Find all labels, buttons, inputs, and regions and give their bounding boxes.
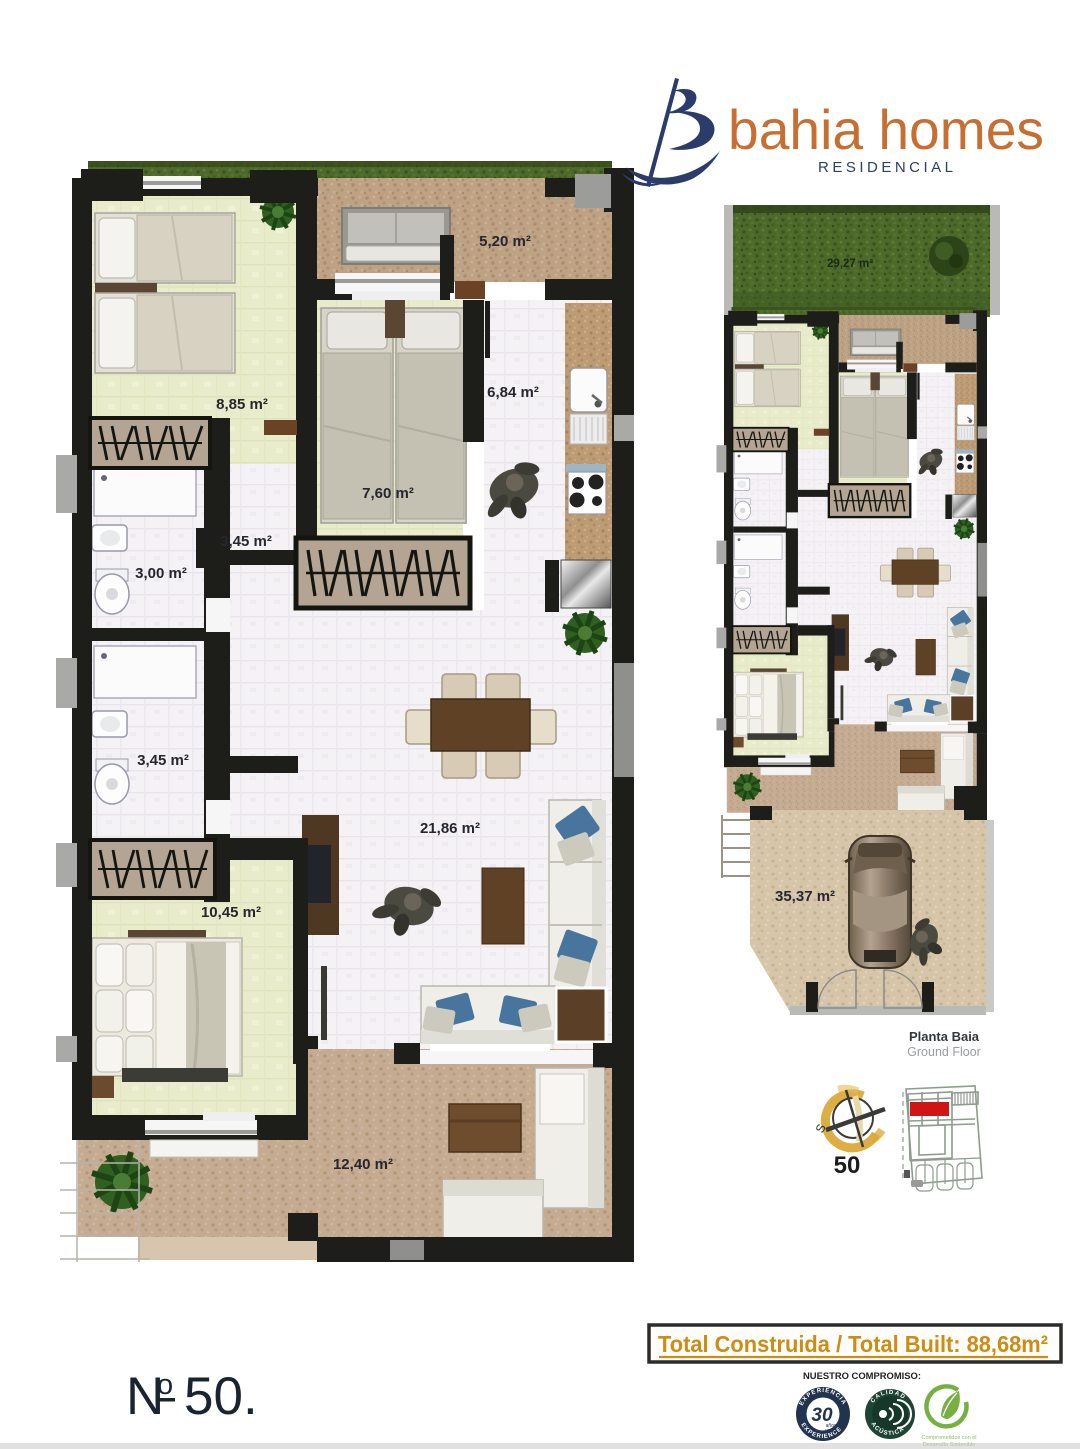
svg-text:Comprometidos con el: Comprometidos con el (921, 1435, 976, 1441)
svg-text:3,45 m²: 3,45 m² (220, 533, 272, 550)
svg-text:Planta Baia: Planta Baia (909, 1029, 980, 1044)
svg-text:6,84 m²: 6,84 m² (487, 384, 539, 401)
svg-text:50: 50 (834, 1152, 861, 1179)
svg-text:3,00 m²: 3,00 m² (135, 565, 187, 582)
svg-text:RESIDENCIAL: RESIDENCIAL (818, 159, 958, 176)
svg-text:12,40 m²: 12,40 m² (333, 1156, 393, 1173)
svg-text:29,27 m²: 29,27 m² (827, 258, 873, 270)
svg-text:50.: 50. (184, 1367, 258, 1426)
svg-text:years: years (825, 1428, 838, 1434)
svg-text:7,60 m²: 7,60 m² (362, 485, 414, 502)
svg-text:35,37 m²: 35,37 m² (775, 888, 835, 905)
svg-text:o: o (157, 1369, 173, 1401)
svg-text:bahia homes: bahia homes (728, 98, 1044, 161)
svg-text:8,85 m²: 8,85 m² (216, 396, 268, 413)
svg-text:Total Construida / Total Built: Total Construida / Total Built: 88,68m² (658, 1331, 1048, 1357)
svg-text:21,86 m²: 21,86 m² (420, 820, 480, 837)
svg-text:Ground Floor: Ground Floor (907, 1045, 981, 1059)
svg-text:NUESTRO COMPROMISO:: NUESTRO COMPROMISO: (803, 1371, 921, 1382)
svg-text:10,45 m²: 10,45 m² (201, 904, 261, 921)
svg-text:5,20 m²: 5,20 m² (479, 233, 531, 250)
svg-text:3,45 m²: 3,45 m² (137, 752, 189, 769)
